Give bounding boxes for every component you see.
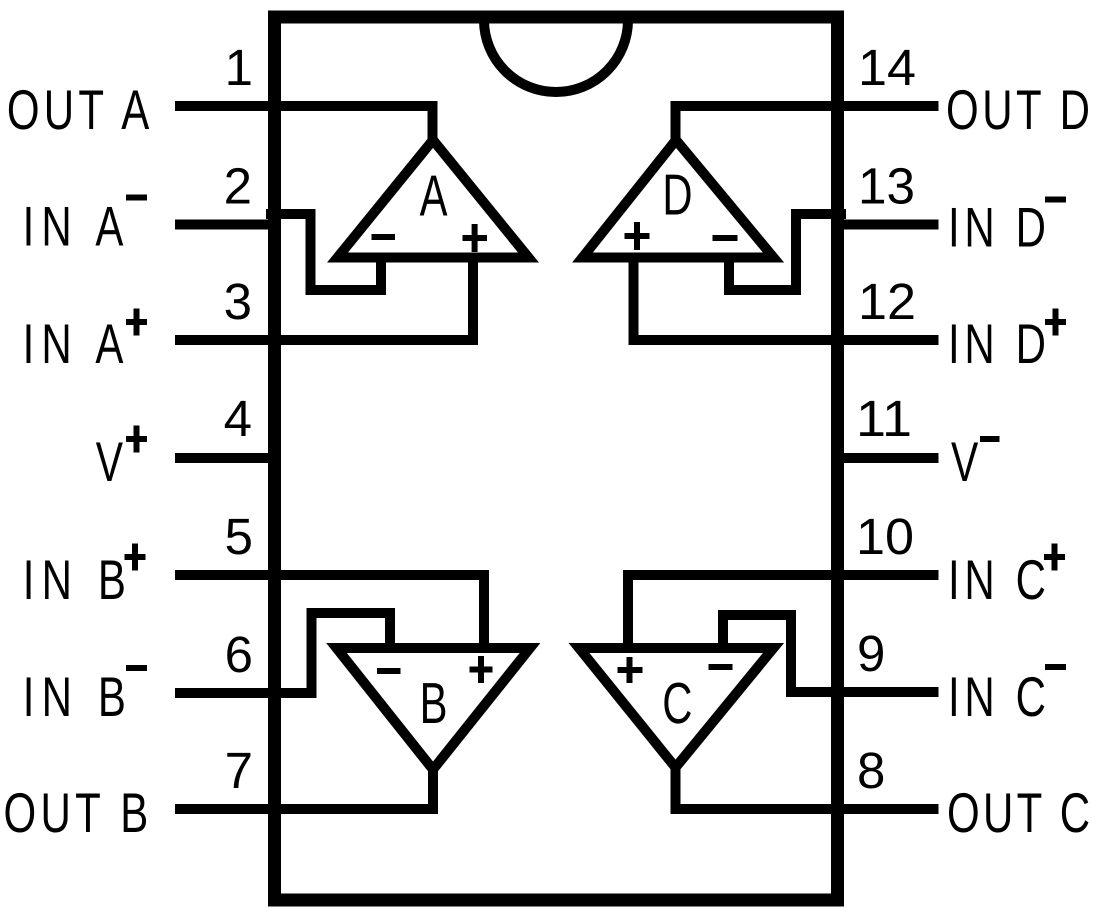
svg-text:6: 6 [225, 626, 253, 683]
svg-text:1: 1 [225, 39, 253, 96]
svg-text:B: B [420, 671, 448, 736]
svg-text:IN A: IN A [23, 312, 131, 375]
svg-text:C: C [662, 671, 692, 736]
svg-text:2: 2 [224, 158, 252, 215]
svg-text:IN D: IN D [948, 312, 1051, 375]
svg-text:IN C: IN C [948, 665, 1051, 728]
svg-text:7: 7 [225, 742, 253, 799]
svg-text:11: 11 [856, 390, 912, 447]
svg-text:4: 4 [224, 390, 252, 447]
svg-text:5: 5 [225, 508, 253, 565]
svg-text:8: 8 [857, 742, 885, 799]
svg-text:IN C: IN C [948, 548, 1051, 611]
svg-text:12: 12 [858, 273, 916, 330]
svg-text:OUT B: OUT B [4, 781, 153, 844]
svg-text:A: A [420, 164, 448, 229]
svg-text:OUT A: OUT A [7, 78, 154, 141]
svg-text:IN A: IN A [23, 195, 131, 258]
svg-text:14: 14 [858, 39, 916, 96]
svg-text:OUT C: OUT C [947, 781, 1093, 844]
svg-text:V: V [96, 430, 124, 493]
svg-text:IN B: IN B [23, 548, 133, 611]
svg-text:9: 9 [857, 625, 885, 682]
svg-text:13: 13 [858, 158, 915, 215]
svg-text:IN D: IN D [948, 196, 1051, 259]
svg-text:10: 10 [856, 508, 914, 565]
svg-text:D: D [662, 163, 692, 228]
svg-text:V: V [951, 430, 979, 493]
svg-text:3: 3 [224, 273, 252, 330]
svg-text:OUT D: OUT D [946, 78, 1094, 141]
svg-text:IN B: IN B [23, 665, 133, 728]
